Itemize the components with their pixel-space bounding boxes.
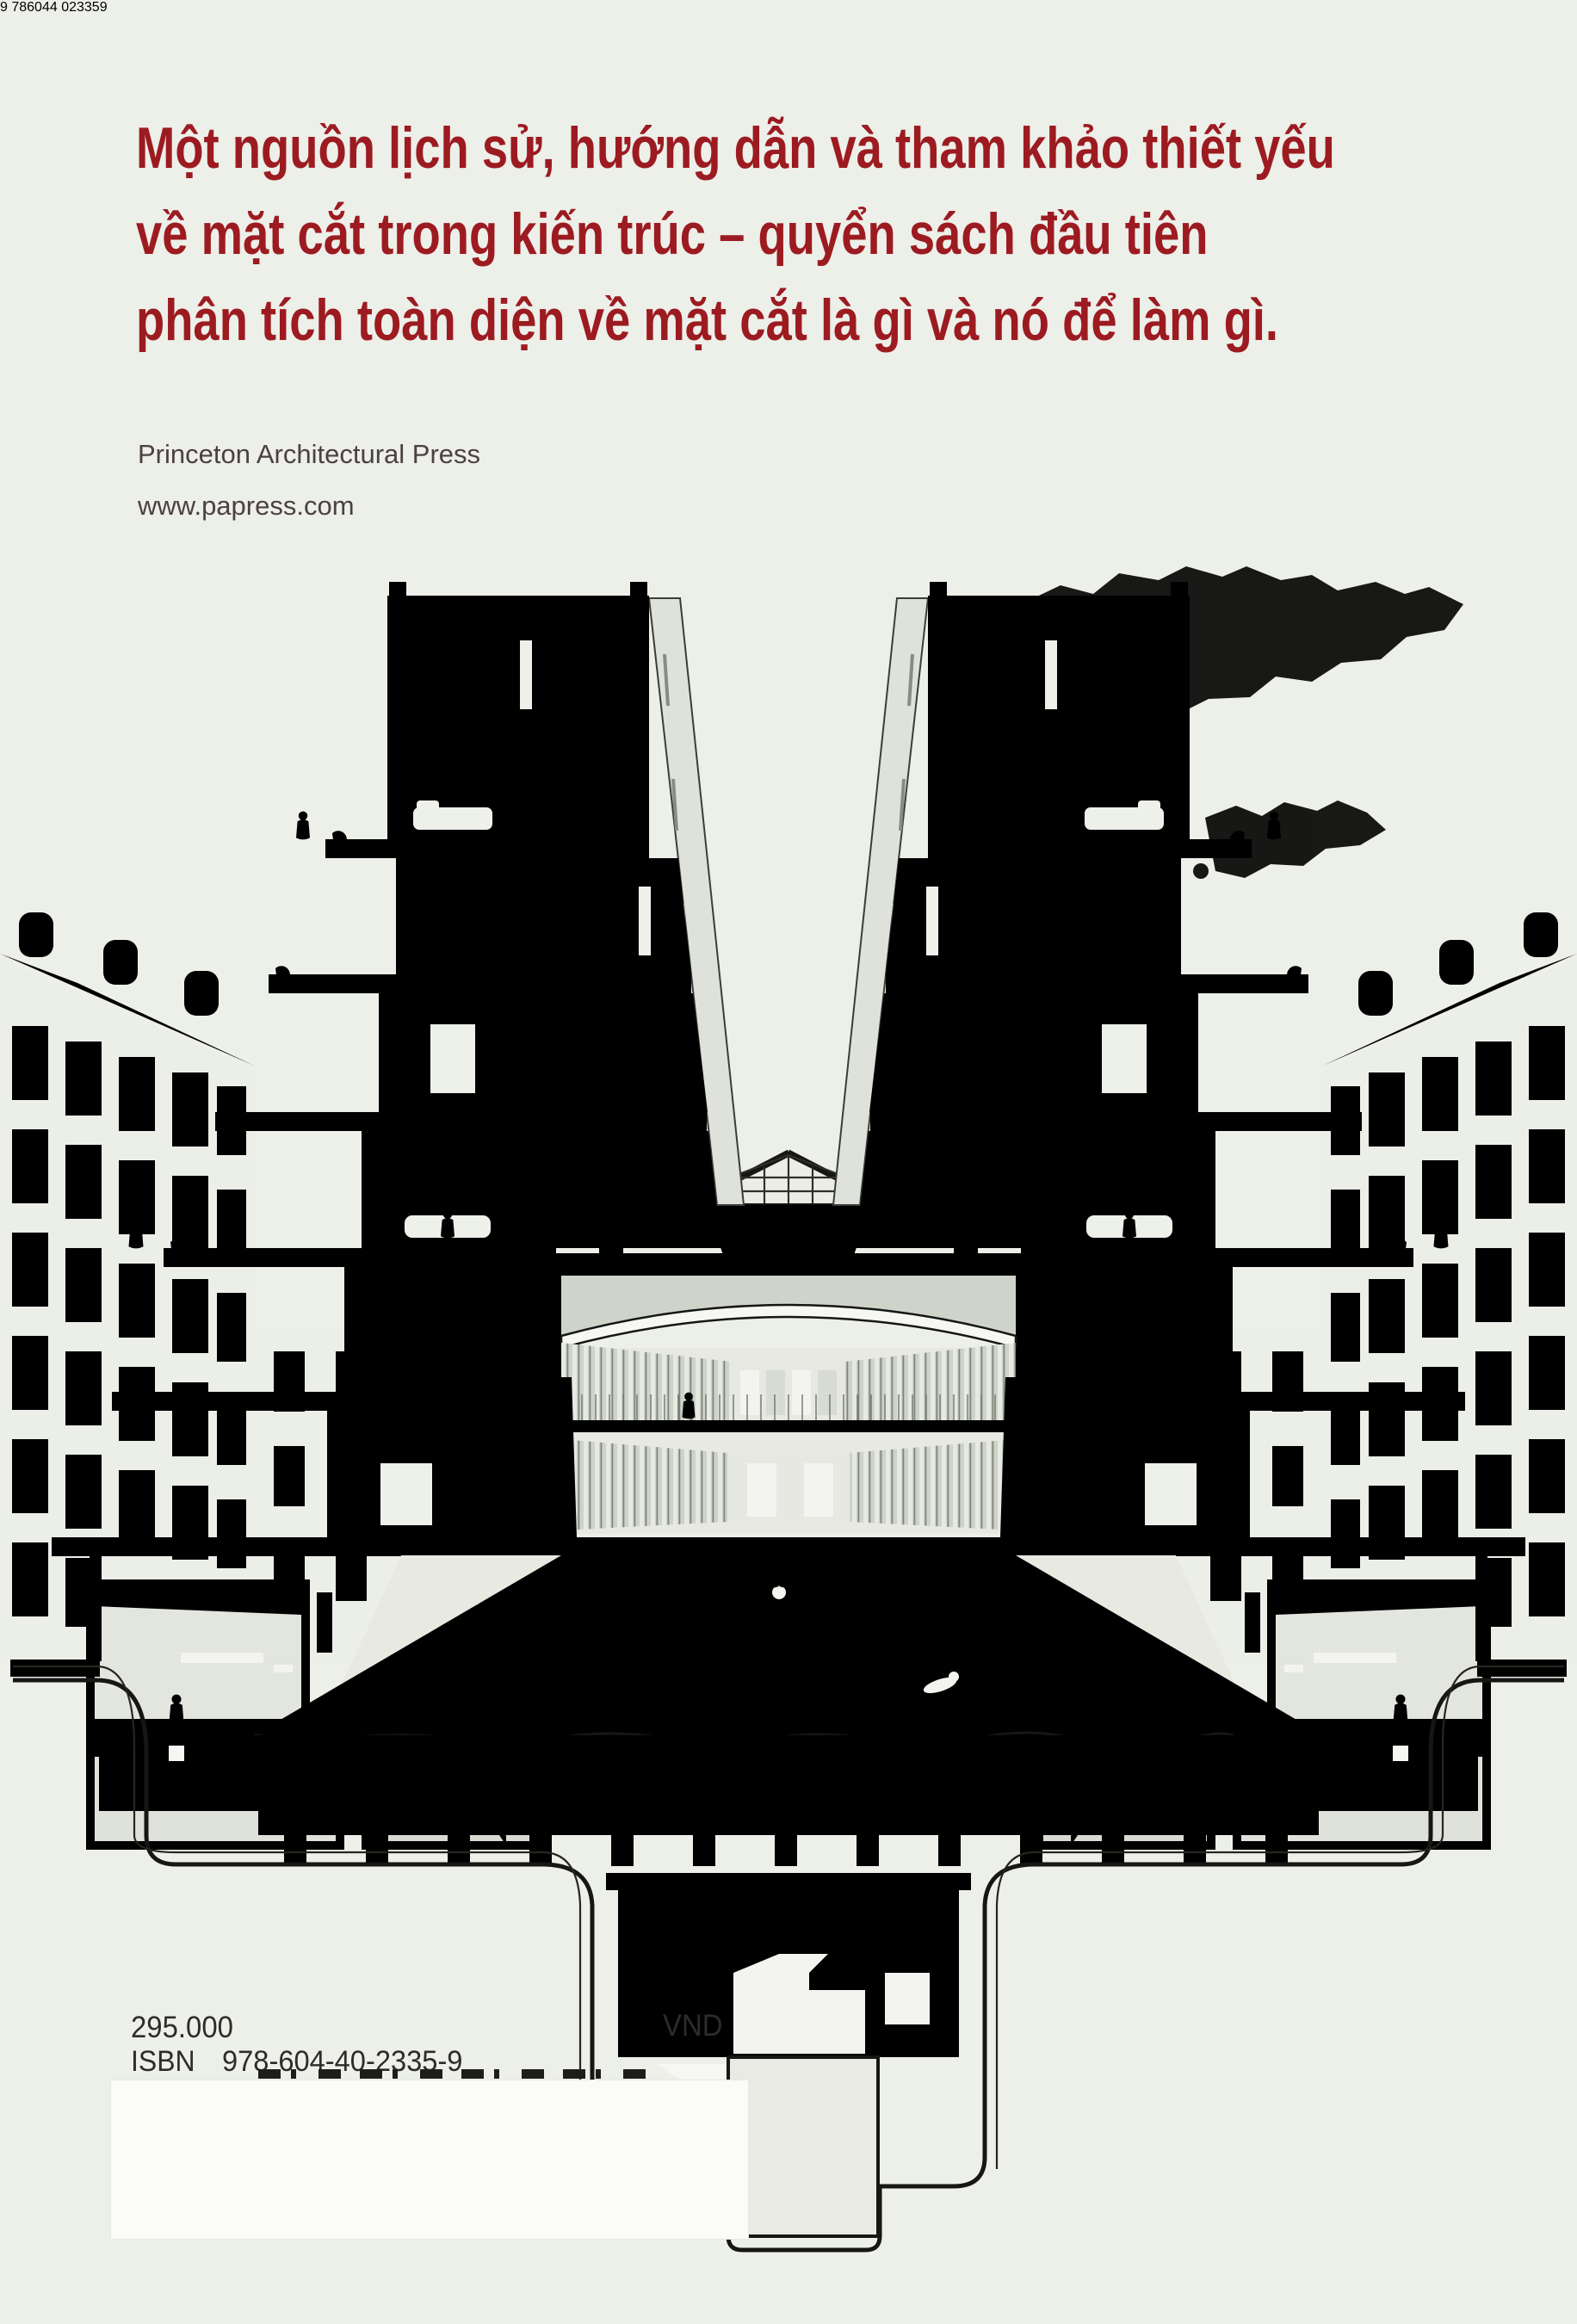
- publisher-block: Princeton Architectural Press www.papres…: [138, 429, 480, 532]
- barcode-lead-digit: 9: [0, 0, 8, 15]
- isbn-label: ISBN: [131, 2045, 195, 2079]
- white-sticker: [110, 2080, 749, 2240]
- tagline: Một nguồn lịch sử, hướng dẫn và tham khả…: [136, 105, 1513, 363]
- publisher-name: Princeton Architectural Press: [138, 429, 480, 480]
- barcode-digits: 9 786044 023359: [0, 0, 1577, 15]
- tagline-line-2: về mặt cắt trong kiến trúc – quyển sách …: [136, 191, 1238, 277]
- barcode-group-2: 023359: [61, 0, 107, 15]
- book-back-cover: { "page": { "background": "#edefe9", "ac…: [0, 0, 1577, 2324]
- price-currency: VND: [663, 2009, 722, 2043]
- barcode-bar-stubs: [102, 2238, 394, 2248]
- tagline-line-1: Một nguồn lịch sử, hướng dẫn và tham khả…: [136, 105, 1238, 191]
- tagline-line-3: phân tích toàn diện về mặt cắt là gì và …: [136, 277, 1238, 363]
- publisher-website: www.papress.com: [138, 480, 480, 532]
- barcode-group-1: 786044: [11, 0, 57, 15]
- price-amount: 295.000: [131, 2011, 233, 2045]
- obscured-text-sliver: [258, 2069, 663, 2079]
